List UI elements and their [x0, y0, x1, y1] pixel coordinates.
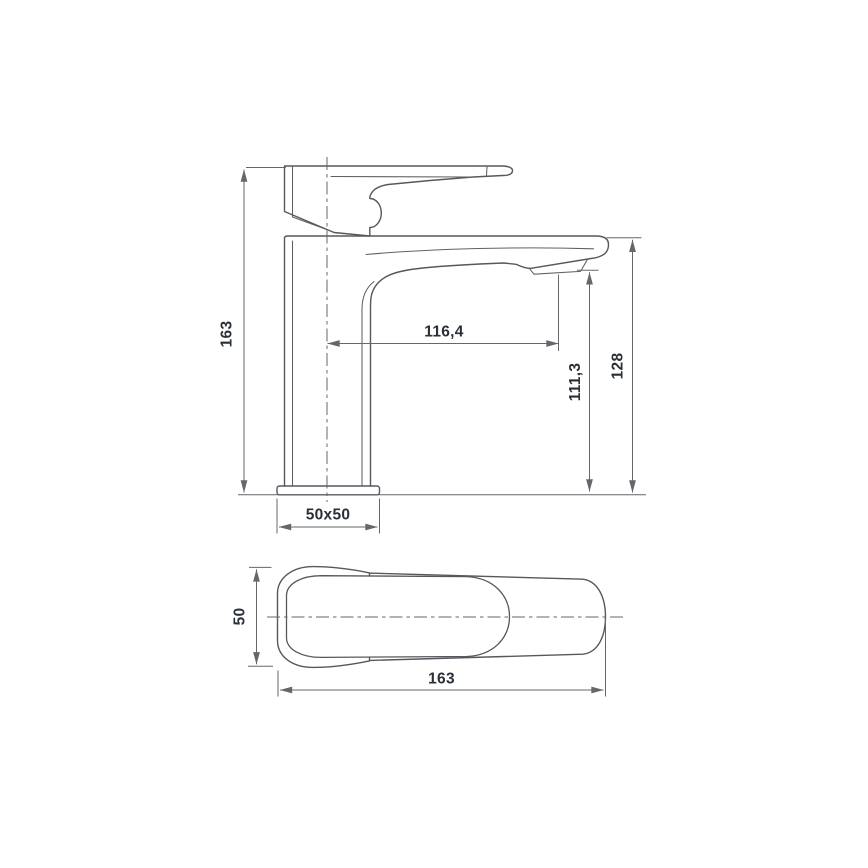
dimension-label: 111,3: [567, 363, 584, 402]
dimension-spout-outlet-height: 111,3: [567, 270, 599, 491]
dimension-total-height: 163: [219, 168, 287, 493]
handle-bevel-line: [331, 177, 472, 178]
technical-drawing: 163 116,4 111,3 128: [0, 0, 868, 868]
drawing-sheet: 163 116,4 111,3 128: [0, 0, 868, 868]
top-view: 50 163: [232, 567, 624, 697]
dimension-label: 50: [232, 608, 249, 626]
dimension-label: 163: [428, 671, 455, 688]
faucet-body-outline: [285, 236, 609, 486]
dimension-label: 116,4: [424, 324, 464, 341]
dimension-body-width: 50: [232, 567, 274, 666]
front-view: 163 116,4 111,3 128: [219, 157, 647, 534]
dimension-label: 128: [610, 353, 627, 380]
dimension-label: 50x50: [306, 507, 351, 524]
base-plate: [277, 486, 380, 495]
dimension-label: 163: [219, 321, 236, 348]
handle-tip-seam-line: [487, 167, 488, 176]
dimension-base-footprint: 50x50: [277, 499, 380, 534]
dimension-body-top-height: 128: [607, 238, 642, 493]
